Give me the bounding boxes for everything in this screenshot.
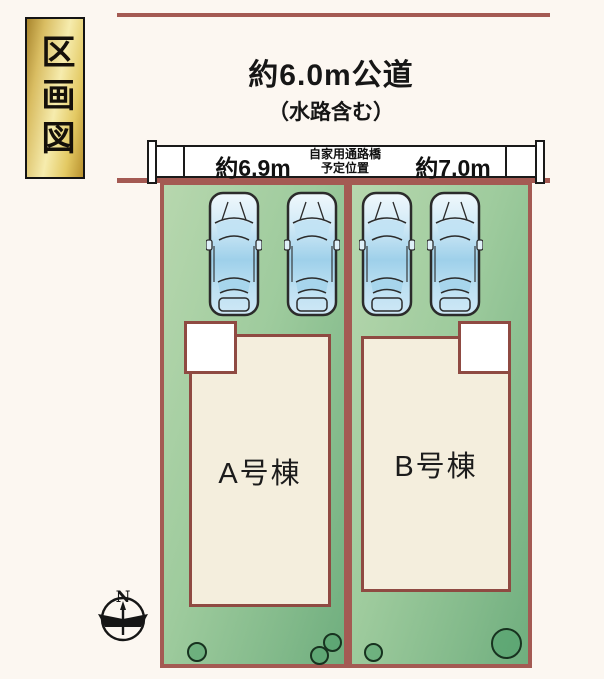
road-width-label: 約6.0m公道 [181, 50, 481, 94]
car-icon [206, 190, 262, 318]
road-top-boundary-line [117, 13, 550, 17]
road-caption: 約6.0m公道 （水路含む） [181, 50, 481, 126]
building-b: B号棟 [361, 336, 511, 592]
tree-icon [364, 643, 383, 662]
map-title-text: 区画図 [38, 34, 72, 163]
bridge-left-joint-line [183, 147, 185, 176]
tree-icon [491, 628, 522, 659]
road-waterway-note: （水路含む） [181, 96, 481, 126]
building-a-label: A号棟 [218, 450, 301, 492]
bridge-note-line2: 予定位置 [303, 161, 387, 175]
plot-map-canvas: 区画図 約6.0m公道 （水路含む） 約6.9m 自家用通路橋 予定位置 約7.… [0, 0, 604, 679]
tree-icon [187, 642, 207, 662]
car-icon [427, 190, 483, 318]
tree-icon [323, 633, 342, 652]
bridge-left-cap [147, 140, 157, 184]
car-icon [359, 190, 415, 318]
car-icon [284, 190, 340, 318]
building-a: A号棟 [189, 334, 331, 607]
north-compass-icon: N [92, 585, 154, 647]
map-title-badge: 区画図 [25, 17, 85, 179]
bridge-right-cap [535, 140, 545, 184]
frontage-width-a-label: 約6.9m [198, 149, 308, 183]
bridge-note-line1: 自家用通路橋 [303, 147, 387, 161]
frontage-width-b-label: 約7.0m [398, 149, 508, 183]
building-b-porch [458, 321, 511, 374]
building-a-porch [184, 321, 237, 374]
bridge-position-note: 自家用通路橋 予定位置 [303, 147, 387, 176]
building-b-label: B号棟 [394, 443, 477, 485]
